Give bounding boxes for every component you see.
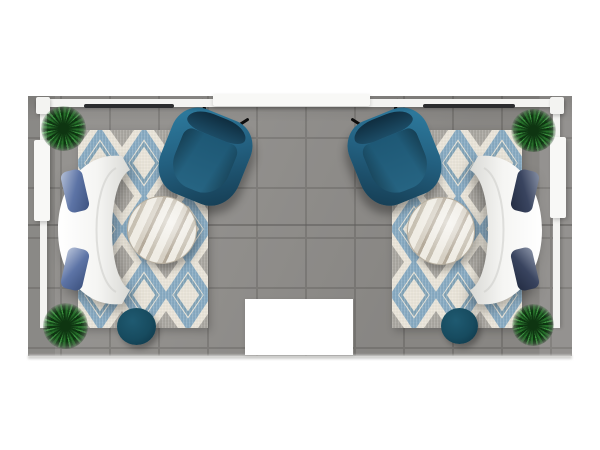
side-shelf-right — [550, 137, 566, 218]
white-floor-mat — [245, 299, 353, 355]
light-fixture-right — [423, 104, 515, 108]
light-fixture-left — [84, 104, 174, 108]
booth-top-view — [0, 0, 600, 450]
plant-foliage — [43, 303, 88, 349]
potted-plant-bottom-right — [512, 304, 554, 346]
floor-bottom-edge — [28, 355, 572, 359]
marble-coffee-table-right — [407, 197, 475, 265]
plant-foliage — [511, 109, 556, 152]
potted-plant-bottom-left — [43, 303, 88, 349]
round-ottoman-right — [441, 308, 478, 344]
plant-foliage — [512, 304, 554, 346]
round-ottoman-left — [117, 308, 156, 345]
corner-post-right — [550, 97, 564, 114]
potted-plant-top-left — [41, 106, 86, 151]
side-shelf-left — [34, 140, 50, 221]
marble-coffee-table-left — [127, 196, 197, 264]
potted-plant-top-right — [511, 109, 556, 152]
plant-foliage — [41, 106, 86, 151]
header-sign-blank — [213, 94, 370, 106]
